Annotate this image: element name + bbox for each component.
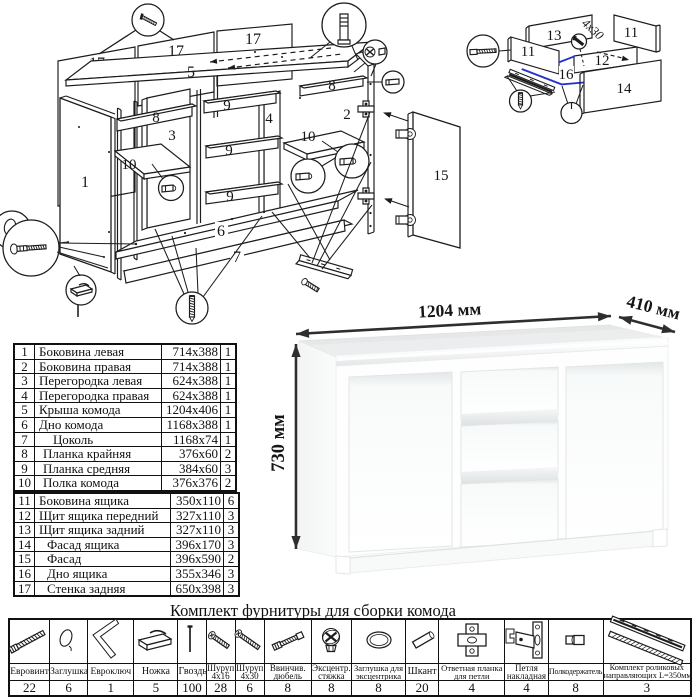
svg-text:7: 7 (233, 249, 241, 266)
svg-text:2: 2 (343, 107, 351, 123)
svg-text:9: 9 (226, 189, 234, 205)
svg-text:15: 15 (434, 168, 449, 184)
svg-text:6: 6 (217, 223, 225, 240)
svg-text:14: 14 (617, 81, 633, 97)
svg-text:10: 10 (122, 157, 137, 173)
svg-text:9: 9 (225, 143, 233, 159)
svg-text:1: 1 (81, 174, 89, 191)
svg-text:9: 9 (223, 98, 231, 114)
svg-text:410 мм: 410 мм (625, 291, 683, 324)
svg-text:3: 3 (168, 128, 176, 144)
svg-text:4: 4 (265, 111, 273, 127)
svg-text:5: 5 (187, 64, 195, 81)
svg-text:10: 10 (301, 129, 316, 145)
svg-text:8: 8 (328, 78, 336, 94)
svg-text:8: 8 (152, 110, 160, 126)
svg-text:12: 12 (595, 53, 610, 69)
svg-text:11: 11 (624, 25, 638, 41)
svg-text:16: 16 (559, 67, 575, 83)
svg-text:1204 мм: 1204 мм (418, 298, 482, 321)
svg-text:13: 13 (547, 28, 562, 44)
svg-text:17: 17 (245, 31, 261, 48)
svg-text:11: 11 (521, 44, 535, 60)
svg-text:730 мм: 730 мм (269, 414, 289, 472)
